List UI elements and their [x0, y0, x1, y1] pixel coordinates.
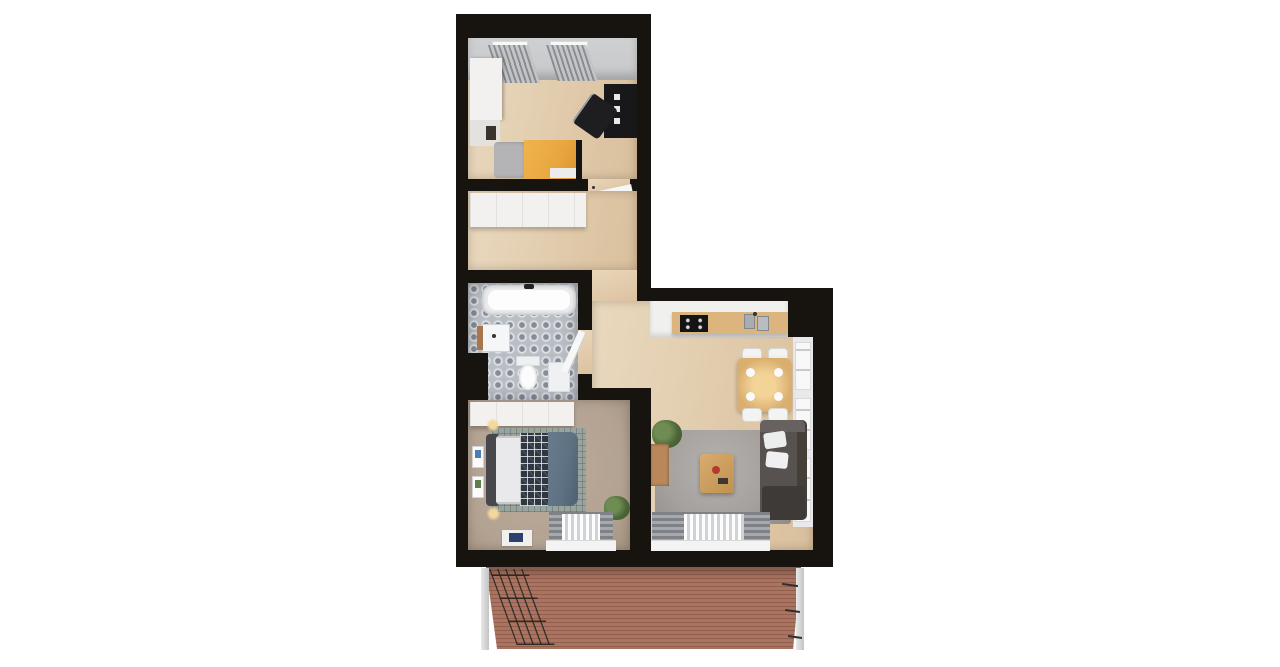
coffee-table-book — [718, 478, 728, 484]
living-window-sill — [650, 540, 770, 551]
office-daybed-sheet — [550, 168, 578, 178]
hallway-wardrobe — [470, 193, 586, 227]
sofa-pillow — [763, 431, 787, 450]
dining-chair — [742, 408, 762, 422]
dining-plate — [774, 368, 783, 377]
kitchen-sink-bowl — [744, 314, 755, 329]
bed-pillows — [496, 436, 522, 504]
side-window-sill — [795, 342, 811, 390]
wall-art-blue — [475, 450, 481, 458]
washbasin-tap — [492, 334, 496, 338]
bed-plaid-blanket — [520, 433, 550, 506]
cooktop — [680, 315, 708, 332]
sofa-pillow — [765, 451, 789, 469]
office-door-handle — [592, 186, 595, 189]
washbasin-wood-shelf — [477, 326, 483, 350]
bedside-lamp — [486, 506, 501, 521]
kitchen-corner-column — [788, 301, 813, 337]
bathroom-wall-step — [468, 353, 488, 400]
office-seat-cushions — [494, 142, 528, 178]
living-sideboard — [650, 444, 669, 486]
bathtub-faucet — [524, 284, 534, 289]
bed-duvet — [548, 432, 578, 506]
office-wardrobe — [470, 58, 502, 120]
balcony-post-left — [481, 568, 489, 650]
washbasin — [482, 324, 510, 352]
toilet-bowl — [519, 364, 537, 390]
dining-plate — [774, 392, 783, 401]
bathtub-basin — [488, 290, 570, 310]
office-shelf-books — [486, 126, 496, 140]
dining-plate — [746, 368, 755, 377]
dining-plate — [746, 392, 755, 401]
coffee-table-decor-red — [712, 466, 720, 474]
kitchen-sink-bowl — [757, 316, 769, 331]
dining-table — [737, 358, 791, 412]
bedside-lamp — [486, 418, 500, 432]
floor-plan-canvas — [0, 0, 1280, 667]
wall-art-green — [475, 480, 481, 488]
bedroom-living-divider-wall — [630, 388, 651, 567]
kitchen-faucet — [753, 312, 757, 316]
corridor-floor — [592, 270, 637, 301]
floor-mat-art — [509, 533, 523, 542]
bedroom-top-wall — [592, 388, 637, 400]
bedroom-window-sill — [546, 540, 616, 551]
office-daybed-frame — [576, 140, 582, 179]
